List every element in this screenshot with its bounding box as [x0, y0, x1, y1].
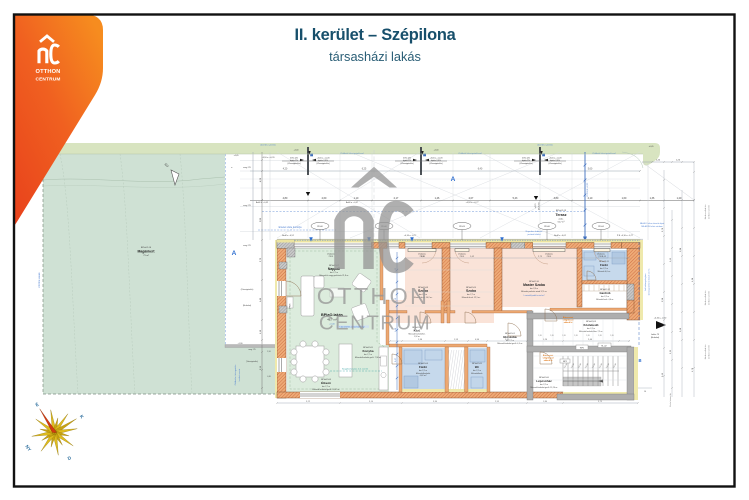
- svg-text:(Vízszigetelés): (Vízszigetelés): [519, 162, 532, 165]
- svg-text:lejtés 2%: lejtés 2%: [522, 159, 530, 162]
- svg-text:Műszaki burkolat gerílt. 4,5: Műszaki burkolat gerílt. 4,5 m²: [497, 342, 523, 345]
- svg-text:Napelem fedésre: Napelem fedésre: [526, 230, 543, 233]
- svg-text:56,7 m²: 56,7 m²: [558, 221, 565, 224]
- svg-text:4,62 m²: 4,62 m²: [420, 374, 427, 377]
- svg-text:KL-02: KL-02: [601, 346, 607, 348]
- svg-text:CENTRUM: CENTRUM: [35, 77, 60, 83]
- svg-text:Konyha: Konyha: [362, 349, 373, 353]
- svg-text:2,17: 2,17: [394, 197, 399, 200]
- svg-text:Fürdő: Fürdő: [419, 365, 427, 369]
- svg-text:BPla02-13: BPla02-13: [556, 210, 567, 212]
- svg-text:Fürdő: Fürdő: [600, 263, 608, 267]
- svg-text:Laminált/padló mind m²: Laminált/padló mind m²: [524, 294, 545, 297]
- svg-text:Műszaki burkolat gerílt. 10,0: Műszaki burkolat gerílt. 10,07 m²: [312, 388, 340, 391]
- svg-text:0,10: 0,10: [267, 376, 271, 378]
- svg-text:szeg.175: szeg.175: [243, 245, 251, 247]
- svg-text:Terasz: Terasz: [555, 213, 566, 217]
- svg-text:P B +4,16 a. -0,77: P B +4,16 a. -0,77: [617, 235, 634, 237]
- svg-text:kertben szemét: kertben szemét: [707, 205, 710, 219]
- svg-text:MILANTE fehér színben: MILANTE fehér színben: [641, 225, 662, 228]
- svg-text:2,60: 2,60: [322, 197, 327, 200]
- svg-text:Étkező: Étkező: [321, 380, 331, 385]
- svg-text:Zárda közterület: Zárda közterület: [669, 393, 672, 407]
- svg-text:1,52 m²: 1,52 m²: [414, 335, 420, 338]
- svg-text:BwM a. +0,57: BwM a. +0,57: [346, 202, 359, 204]
- svg-text:(Vízszigetelés): (Vízszigetelés): [246, 360, 258, 363]
- svg-text:szeg.175: szeg.175: [243, 205, 251, 207]
- svg-text:vízmegvezetésre alakult urat h: vízmegvezetésre alakult urat ha: [647, 268, 650, 296]
- svg-text:Járda melletti kis: Járda melletti kis: [704, 345, 707, 360]
- svg-text:BwM a. -0,52: BwM a. -0,52: [282, 235, 295, 237]
- svg-text:Bútorozási: Bútorozási: [563, 316, 574, 319]
- svg-text:PK-06: PK-06: [544, 226, 550, 228]
- svg-text:1,60: 1,60: [622, 197, 627, 200]
- svg-text:17 x 18,2 = 2,55: 17 x 18,2 = 2,55: [587, 182, 589, 197]
- svg-text:1,50: 1,50: [267, 351, 271, 353]
- svg-text:Zöldtető hőszigeteléssel: Zöldtető hőszigeteléssel: [592, 152, 616, 155]
- svg-text:(Vízszigetelés): (Vízszigetelés): [241, 288, 254, 291]
- svg-text:+4,16 a. +0,20: +4,16 a. +0,20: [262, 157, 276, 159]
- svg-text:A: A: [232, 250, 237, 257]
- svg-text:Műszaki burkolat gerílt. 11,2: Műszaki burkolat gerílt. 11,24 m²: [530, 386, 558, 389]
- svg-text:járda: járda: [558, 218, 564, 220]
- svg-text:1,20: 1,20: [538, 335, 541, 337]
- svg-text:+4,16 a. +0,77: +4,16 a. +0,77: [466, 202, 480, 204]
- svg-text:+4,40: +4,40: [293, 150, 299, 152]
- svg-text:1,46: 1,46: [435, 197, 440, 200]
- svg-text:világítással: világítással: [543, 357, 554, 360]
- svg-text:PK01: PK01: [329, 256, 333, 258]
- svg-text:(Vízszigetelés): (Vízszigetelés): [316, 162, 329, 165]
- svg-text:lejtés 2%: lejtés 2%: [403, 159, 411, 162]
- svg-text:Bútorozási: Bútorozási: [543, 354, 554, 357]
- svg-text:lejtés 2%: lejtés 2%: [290, 159, 298, 162]
- svg-text:Zöldtető hőszigeteléssel: Zöldtető hőszigeteléssel: [340, 152, 364, 155]
- svg-text:+4,15: +4,15: [535, 203, 537, 209]
- svg-text:Szoba: Szoba: [466, 289, 476, 293]
- svg-text:(Vízszigetelés): (Vízszigetelés): [400, 162, 413, 165]
- svg-text:(Burkolat): (Burkolat): [651, 336, 660, 339]
- svg-text:(Burkolat): (Burkolat): [243, 304, 252, 307]
- svg-text:Lakás 73: Lakás 73: [651, 334, 660, 336]
- svg-text:világítással: világítással: [563, 319, 574, 322]
- svg-text:(kerítés szerint): (kerítés szerint): [537, 144, 552, 147]
- svg-text:Műszaki/burk.: Műszaki/burk.: [471, 372, 483, 375]
- svg-text:OTTHON: OTTHON: [317, 283, 429, 309]
- svg-text:1,20: 1,20: [550, 335, 553, 337]
- svg-text:+4,40: +4,40: [433, 150, 439, 152]
- svg-text:Járda melletti kis: Járda melletti kis: [704, 205, 707, 220]
- svg-text:falé vékonyrétegben: falé vékonyrétegben: [644, 273, 647, 290]
- svg-text:Műszaki fa vagy geríttözés 21: Műszaki fa vagy geríttözés 21,8 m²: [319, 274, 349, 277]
- svg-text:Műszaki burk. 4,0 m²: Műszaki burk. 4,0 m²: [596, 298, 614, 301]
- svg-text:1,20: 1,20: [677, 197, 682, 200]
- svg-text:(Burkolat): (Burkolat): [538, 202, 541, 210]
- svg-text:Műszaki parketta mind 17,5 m²: Műszaki parketta mind 17,5 m²: [521, 290, 547, 293]
- svg-text:Közlekedő: Közlekedő: [583, 323, 598, 327]
- svg-text:PK-03: PK-03: [459, 226, 465, 228]
- svg-text:Magánkert: Magánkert: [138, 249, 156, 253]
- svg-text:Műszaki burkolat/ker. 7,2 m²: Műszaki burkolat/ker. 7,2 m²: [579, 330, 603, 333]
- svg-text:kertben szemét: kertben szemét: [707, 291, 710, 305]
- svg-text:5,43: 5,43: [513, 197, 518, 200]
- svg-text:javított felület: javított felület: [527, 233, 541, 236]
- svg-text:lejtés 2,5%: lejtés 2,5%: [550, 159, 560, 162]
- svg-text:Emelet széle kontúrja: Emelet széle kontúrja: [279, 226, 303, 229]
- svg-text:6,25: 6,25: [362, 169, 367, 171]
- svg-text:PK01: PK01: [547, 256, 551, 258]
- svg-text:Műszaki/burkolat gerílt. 7,58: Műszaki/burkolat gerílt. 7,58 m²: [355, 356, 382, 359]
- svg-text:Wc: Wc: [475, 365, 480, 369]
- svg-text:PK-04: PK-04: [598, 226, 604, 228]
- svg-text:CENTRUM: CENTRUM: [319, 312, 431, 335]
- svg-text:II. kerület – Szépilona: II. kerület – Szépilona: [295, 26, 457, 44]
- svg-text:3,80: 3,80: [554, 197, 559, 200]
- svg-text:kertben szemét: kertben szemét: [707, 345, 710, 359]
- svg-text:1,20: 1,20: [574, 335, 577, 337]
- svg-text:+0,45: +0,45: [648, 146, 654, 148]
- svg-text:Zöldtetőre hőszigetelés: Zöldtetőre hőszigetelés: [234, 365, 237, 386]
- svg-text:alakult ki: alakult ki: [544, 359, 553, 362]
- svg-text:73 m²: 73 m²: [143, 254, 149, 257]
- svg-text:1,10: 1,10: [354, 197, 359, 200]
- svg-text:4,20: 4,20: [283, 169, 288, 171]
- svg-text:1,20: 1,20: [586, 335, 589, 337]
- svg-text:1,20: 1,20: [562, 335, 565, 337]
- svg-text:BwM a. -0,02: BwM a. -0,02: [554, 235, 567, 237]
- svg-text:szeg.175: szeg.175: [243, 167, 251, 169]
- svg-text:5,60: 5,60: [588, 169, 593, 171]
- svg-text:1,20: 1,20: [610, 335, 613, 337]
- svg-text:kerület szerint: kerület szerint: [238, 368, 241, 381]
- svg-text:alakult ki: alakult ki: [564, 321, 573, 324]
- svg-text:társasházi lakás: társasházi lakás: [329, 49, 421, 64]
- svg-text:(Vízszigetelés): (Vízszigetelés): [548, 162, 561, 165]
- svg-text:(Vízszigetelés): (Vízszigetelés): [287, 162, 300, 165]
- svg-text:Gardrób: Gardrób: [599, 291, 610, 295]
- svg-text:(kerítés szerint): (kerítés szerint): [260, 144, 275, 147]
- svg-text:Zöldtető hőszigeteléssel: Zöldtető hőszigeteléssel: [458, 152, 482, 155]
- svg-text:1,20: 1,20: [598, 335, 601, 337]
- svg-text:+4,45: +4,45: [233, 155, 239, 157]
- svg-text:(Vízszigetelés): (Vízszigetelés): [429, 162, 442, 165]
- svg-text:A: A: [451, 176, 456, 183]
- svg-text:Master Szoba: Master Szoba: [523, 283, 545, 287]
- svg-text:ÉPÍTÉSI HATÁR: ÉPÍTÉSI HATÁR: [38, 272, 41, 287]
- svg-text:2,07: 2,07: [469, 197, 474, 200]
- svg-text:PK-00: PK-00: [317, 226, 323, 228]
- svg-text:6,40: 6,40: [478, 169, 483, 171]
- svg-text:lejtés 2,5%: lejtés 2,5%: [318, 159, 328, 162]
- svg-text:+4,16 a. -0,77: +4,16 a. -0,77: [404, 235, 417, 237]
- svg-text:OTTHON: OTTHON: [36, 69, 61, 75]
- svg-text:1,36: 1,36: [650, 197, 655, 200]
- svg-text:BwM a. +0,52: BwM a. +0,52: [256, 202, 269, 204]
- svg-text:szeg.175: szeg.175: [248, 349, 255, 351]
- svg-text:Járda melletti kis: Járda melletti kis: [704, 291, 707, 306]
- svg-text:lejtés 2,5%: lejtés 2,5%: [431, 159, 441, 162]
- svg-text:NA HU Dalica elosztó aljzat: NA HU Dalica elosztó aljzat: [640, 222, 665, 225]
- svg-text:+4,16 a. -0,20: +4,16 a. -0,20: [654, 317, 667, 319]
- svg-text:Műszaki 4,6 m²: Műszaki 4,6 m²: [598, 270, 611, 273]
- svg-text:B: B: [638, 358, 641, 363]
- svg-text:PK01: PK01: [460, 256, 464, 258]
- svg-text:Műszaki burk. 12,1 m²: Műszaki burk. 12,1 m²: [462, 296, 481, 299]
- svg-text:Lépcsőház: Lépcsőház: [536, 379, 552, 383]
- svg-text:Szagelszívó pára m.k. szerint: Szagelszívó pára m.k. szerint: [342, 368, 369, 371]
- svg-text:4,80: 4,80: [283, 197, 288, 200]
